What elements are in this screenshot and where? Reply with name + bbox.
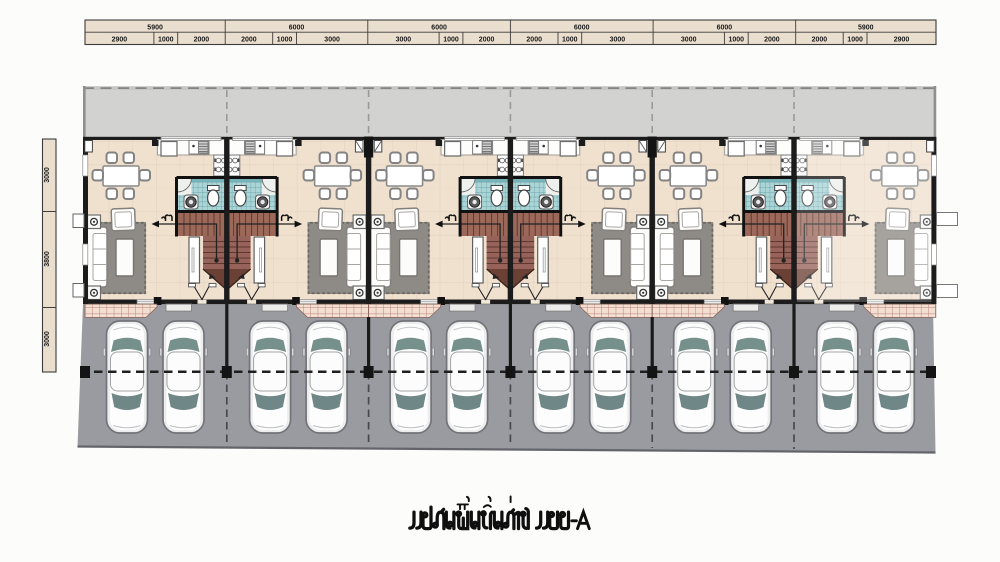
svg-text:1000: 1000 bbox=[158, 37, 174, 44]
svg-text:2900: 2900 bbox=[894, 37, 910, 44]
svg-text:6000: 6000 bbox=[717, 24, 733, 31]
svg-text:2000: 2000 bbox=[812, 37, 828, 44]
svg-text:2000: 2000 bbox=[526, 37, 542, 44]
svg-text:1000: 1000 bbox=[847, 37, 863, 44]
svg-text:3000: 3000 bbox=[396, 37, 412, 44]
svg-text:6000: 6000 bbox=[431, 24, 447, 31]
svg-text:2000: 2000 bbox=[479, 37, 495, 44]
svg-text:2900: 2900 bbox=[112, 37, 128, 44]
svg-text:3000: 3000 bbox=[44, 331, 51, 347]
svg-text:3800: 3800 bbox=[44, 251, 51, 267]
svg-text:1000: 1000 bbox=[277, 37, 293, 44]
svg-text:2000: 2000 bbox=[764, 37, 780, 44]
svg-text:5900: 5900 bbox=[858, 24, 874, 31]
svg-text:1000: 1000 bbox=[443, 37, 459, 44]
svg-text:5900: 5900 bbox=[147, 24, 163, 31]
svg-text:6000: 6000 bbox=[574, 24, 590, 31]
svg-text:3000: 3000 bbox=[324, 37, 340, 44]
svg-text:3000: 3000 bbox=[610, 37, 626, 44]
svg-text:1000: 1000 bbox=[562, 37, 578, 44]
svg-text:1000: 1000 bbox=[729, 37, 745, 44]
svg-text:3000: 3000 bbox=[44, 167, 51, 183]
svg-text:2000: 2000 bbox=[241, 37, 257, 44]
svg-text:6000: 6000 bbox=[289, 24, 305, 31]
svg-text:3000: 3000 bbox=[681, 37, 697, 44]
svg-text:2000: 2000 bbox=[194, 37, 210, 44]
